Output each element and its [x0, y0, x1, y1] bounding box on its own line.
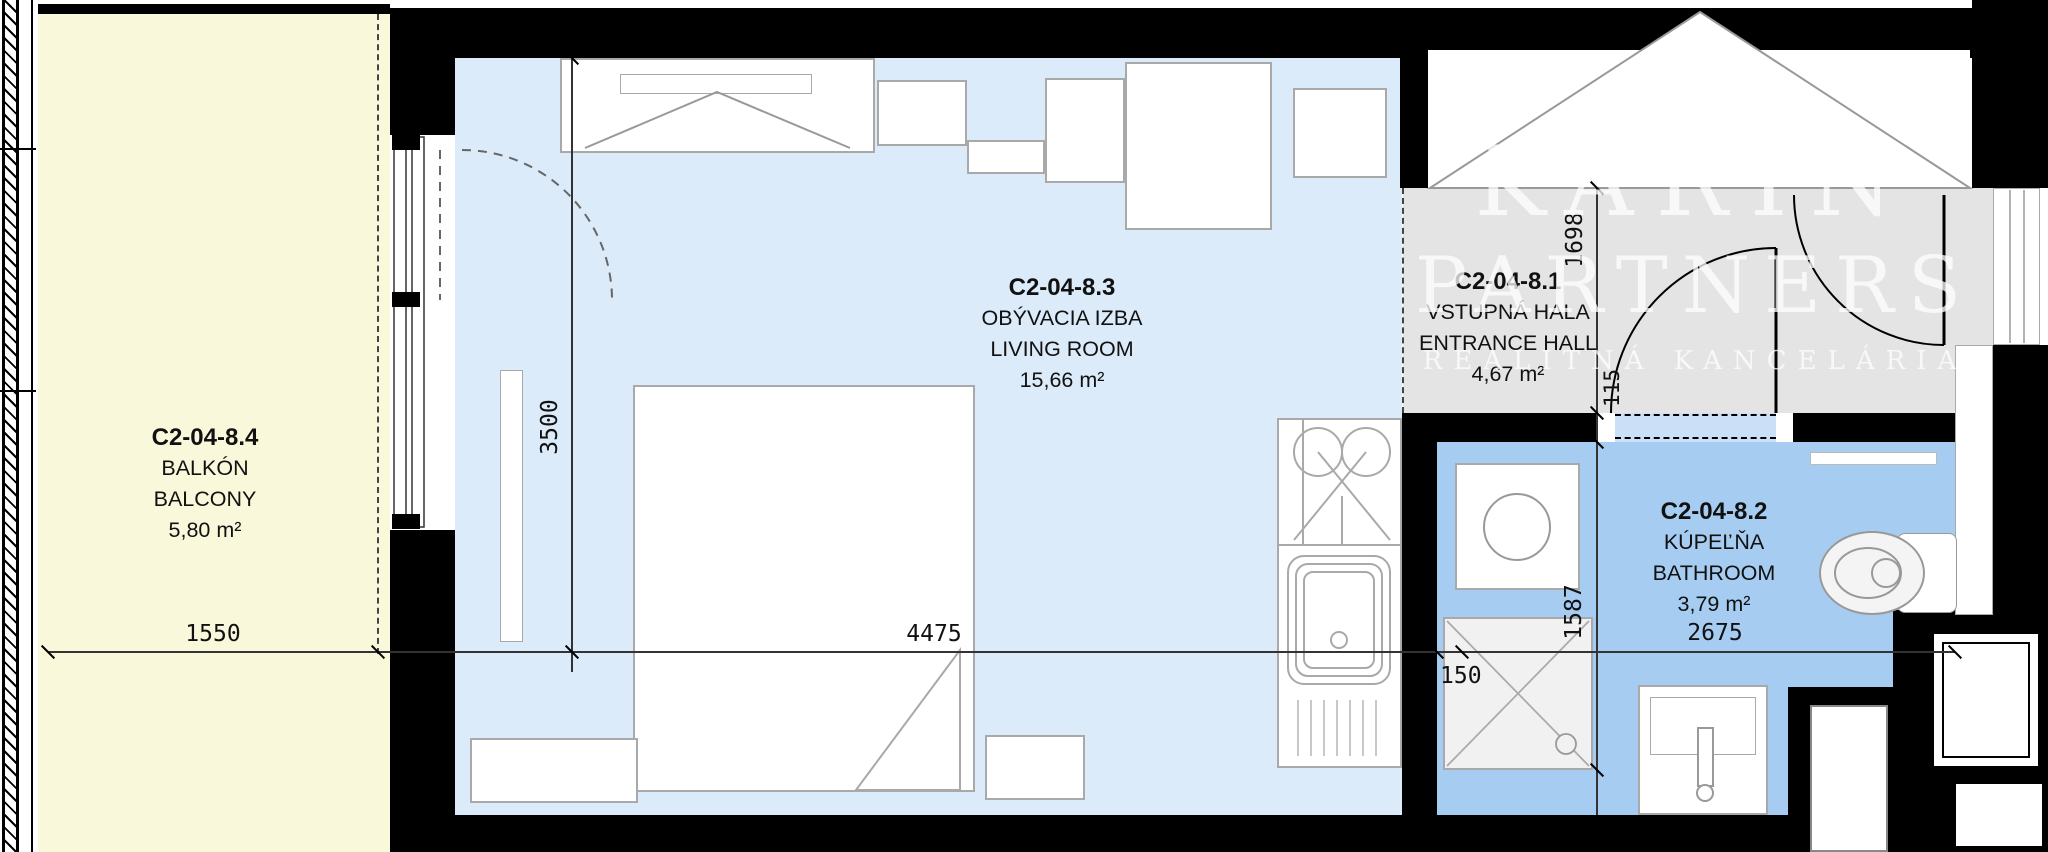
dim-hall-depth: 1698 — [1562, 212, 1588, 267]
toilet-tank — [1897, 533, 1957, 613]
facade-line — [31, 0, 33, 852]
room-code: C2-04-8.1 — [1383, 266, 1633, 297]
entrance-door-frame — [1993, 188, 2040, 345]
wardrobe-area — [1428, 50, 1970, 188]
balcony-edge-dashed-line — [377, 14, 379, 654]
shower — [1443, 617, 1593, 770]
cabinet — [1045, 78, 1125, 183]
dim-living-width: 4475 — [906, 621, 961, 647]
balcony-top-wall — [38, 4, 390, 14]
entrance-hall-label: C2-04-8.1 VSTUPNÁ HALA ENTRANCE HALL 4,6… — [1383, 266, 1633, 390]
room-name-en: ENTRANCE HALL — [1383, 328, 1633, 359]
floor-plan: 1550 4475 2675 150 3500 1698 115 1587 C2… — [0, 0, 2048, 852]
dim-balcony-width: 1550 — [185, 621, 240, 647]
duct-box-inner — [1942, 642, 2030, 758]
cabinet — [967, 140, 1045, 174]
tall-cabinet — [1125, 62, 1272, 230]
room-area: 5,80 m² — [85, 515, 325, 546]
room-name-local: VSTUPNÁ HALA — [1383, 297, 1633, 328]
kitchen-unit — [1277, 418, 1402, 768]
room-name-local: OBÝVACIA IZBA — [912, 303, 1212, 334]
duct-box — [1950, 778, 2048, 852]
top-right-corner-wall — [1972, 0, 2048, 188]
room-name-en: LIVING ROOM — [912, 334, 1212, 365]
bathroom-shelf — [1810, 452, 1937, 465]
room-code: C2-04-8.3 — [912, 272, 1212, 303]
door-opening-line — [1615, 414, 1776, 416]
balcony-label: C2-04-8.4 BALKÓN BALCONY 5,80 m² — [85, 422, 325, 546]
radiator — [500, 370, 523, 642]
washing-machine — [1455, 463, 1580, 590]
room-name-en: BALCONY — [85, 484, 325, 515]
dim-bath-width: 2675 — [1687, 620, 1742, 646]
room-code: C2-04-8.2 — [1594, 496, 1834, 527]
window-pillar-bottom — [390, 530, 455, 852]
dim-living-depth: 3500 — [537, 399, 563, 454]
nightstand — [985, 735, 1085, 800]
living-room-label: C2-04-8.3 OBÝVACIA IZBA LIVING ROOM 15,6… — [912, 272, 1212, 396]
dim-bath-depth: 1587 — [1561, 584, 1587, 639]
washbasin — [1650, 697, 1756, 755]
hall-bath-wall-left — [1402, 413, 1598, 442]
dimension-line-horizontal — [48, 651, 1955, 653]
room-area: 4,67 m² — [1383, 359, 1633, 390]
balcony-window-opening — [390, 135, 455, 530]
bathroom-label: C2-04-8.2 KÚPEĽŇA BATHROOM 3,79 m² — [1594, 496, 1834, 620]
room-code: C2-04-8.4 — [85, 422, 325, 453]
hall-wall-stub — [1400, 58, 1428, 188]
room-name-en: BATHROOM — [1594, 558, 1834, 589]
bathroom-door-jamb — [1776, 413, 1793, 442]
utility-shaft — [1955, 345, 1993, 615]
bench — [470, 738, 638, 803]
right-wall — [1993, 345, 2048, 615]
facade-mark — [0, 148, 36, 150]
facade-mark — [0, 390, 36, 392]
closet — [560, 58, 875, 153]
facade-line — [16, 0, 19, 852]
room-area: 3,79 m² — [1594, 589, 1834, 620]
duct-box — [1810, 705, 1888, 852]
room-name-local: BALKÓN — [85, 453, 325, 484]
cabinet — [877, 80, 967, 146]
facade-line — [2, 0, 5, 852]
dimension-line-vertical — [571, 58, 573, 672]
facade-hatch — [5, 0, 16, 852]
bed — [633, 385, 975, 792]
window-pillar-top — [390, 8, 455, 135]
cabinet — [1293, 88, 1387, 178]
room-name-local: KÚPEĽŇA — [1594, 527, 1834, 558]
dim-niche: 150 — [1440, 663, 1482, 689]
door-opening-line — [1615, 437, 1776, 439]
closet-shelf — [620, 74, 812, 94]
room-area: 15,66 m² — [912, 365, 1212, 396]
